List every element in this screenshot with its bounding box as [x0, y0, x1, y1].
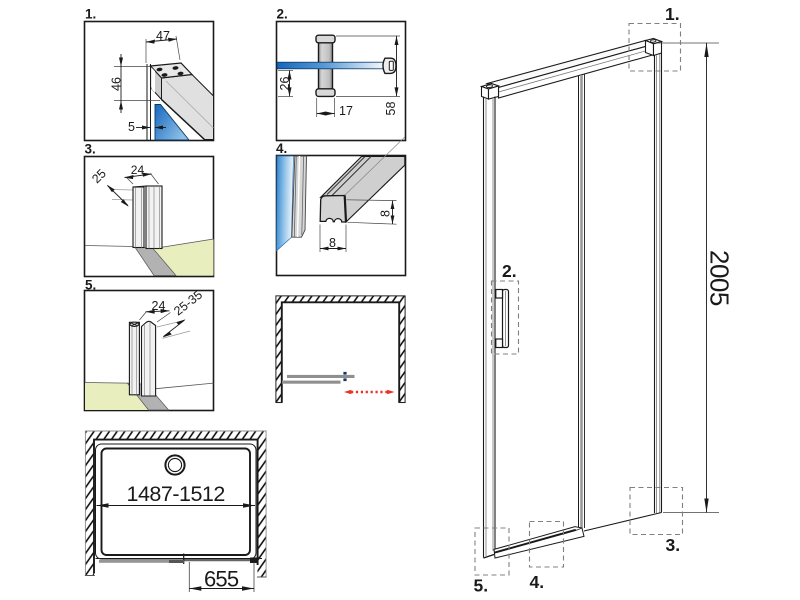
- svg-text:58: 58: [384, 102, 398, 116]
- svg-text:3.: 3.: [666, 535, 681, 555]
- svg-text:26: 26: [278, 77, 292, 91]
- svg-text:17: 17: [339, 104, 353, 118]
- svg-text:46: 46: [110, 77, 124, 91]
- svg-text:5.: 5.: [474, 576, 489, 596]
- svg-text:47: 47: [156, 29, 170, 43]
- svg-text:8: 8: [329, 236, 336, 250]
- svg-text:24: 24: [152, 299, 166, 313]
- svg-text:8: 8: [379, 210, 393, 217]
- svg-text:655: 655: [204, 567, 239, 592]
- svg-text:24: 24: [131, 163, 145, 177]
- svg-text:4.: 4.: [530, 572, 545, 592]
- svg-text:1487-1512: 1487-1512: [127, 482, 225, 506]
- svg-text:4.: 4.: [276, 141, 287, 156]
- svg-text:2.: 2.: [502, 261, 517, 281]
- svg-text:5: 5: [128, 120, 135, 134]
- svg-text:1.: 1.: [665, 4, 680, 24]
- svg-text:2005: 2005: [705, 250, 735, 306]
- svg-text:1.: 1.: [85, 7, 96, 22]
- svg-text:3.: 3.: [85, 142, 96, 157]
- svg-text:2.: 2.: [277, 7, 288, 22]
